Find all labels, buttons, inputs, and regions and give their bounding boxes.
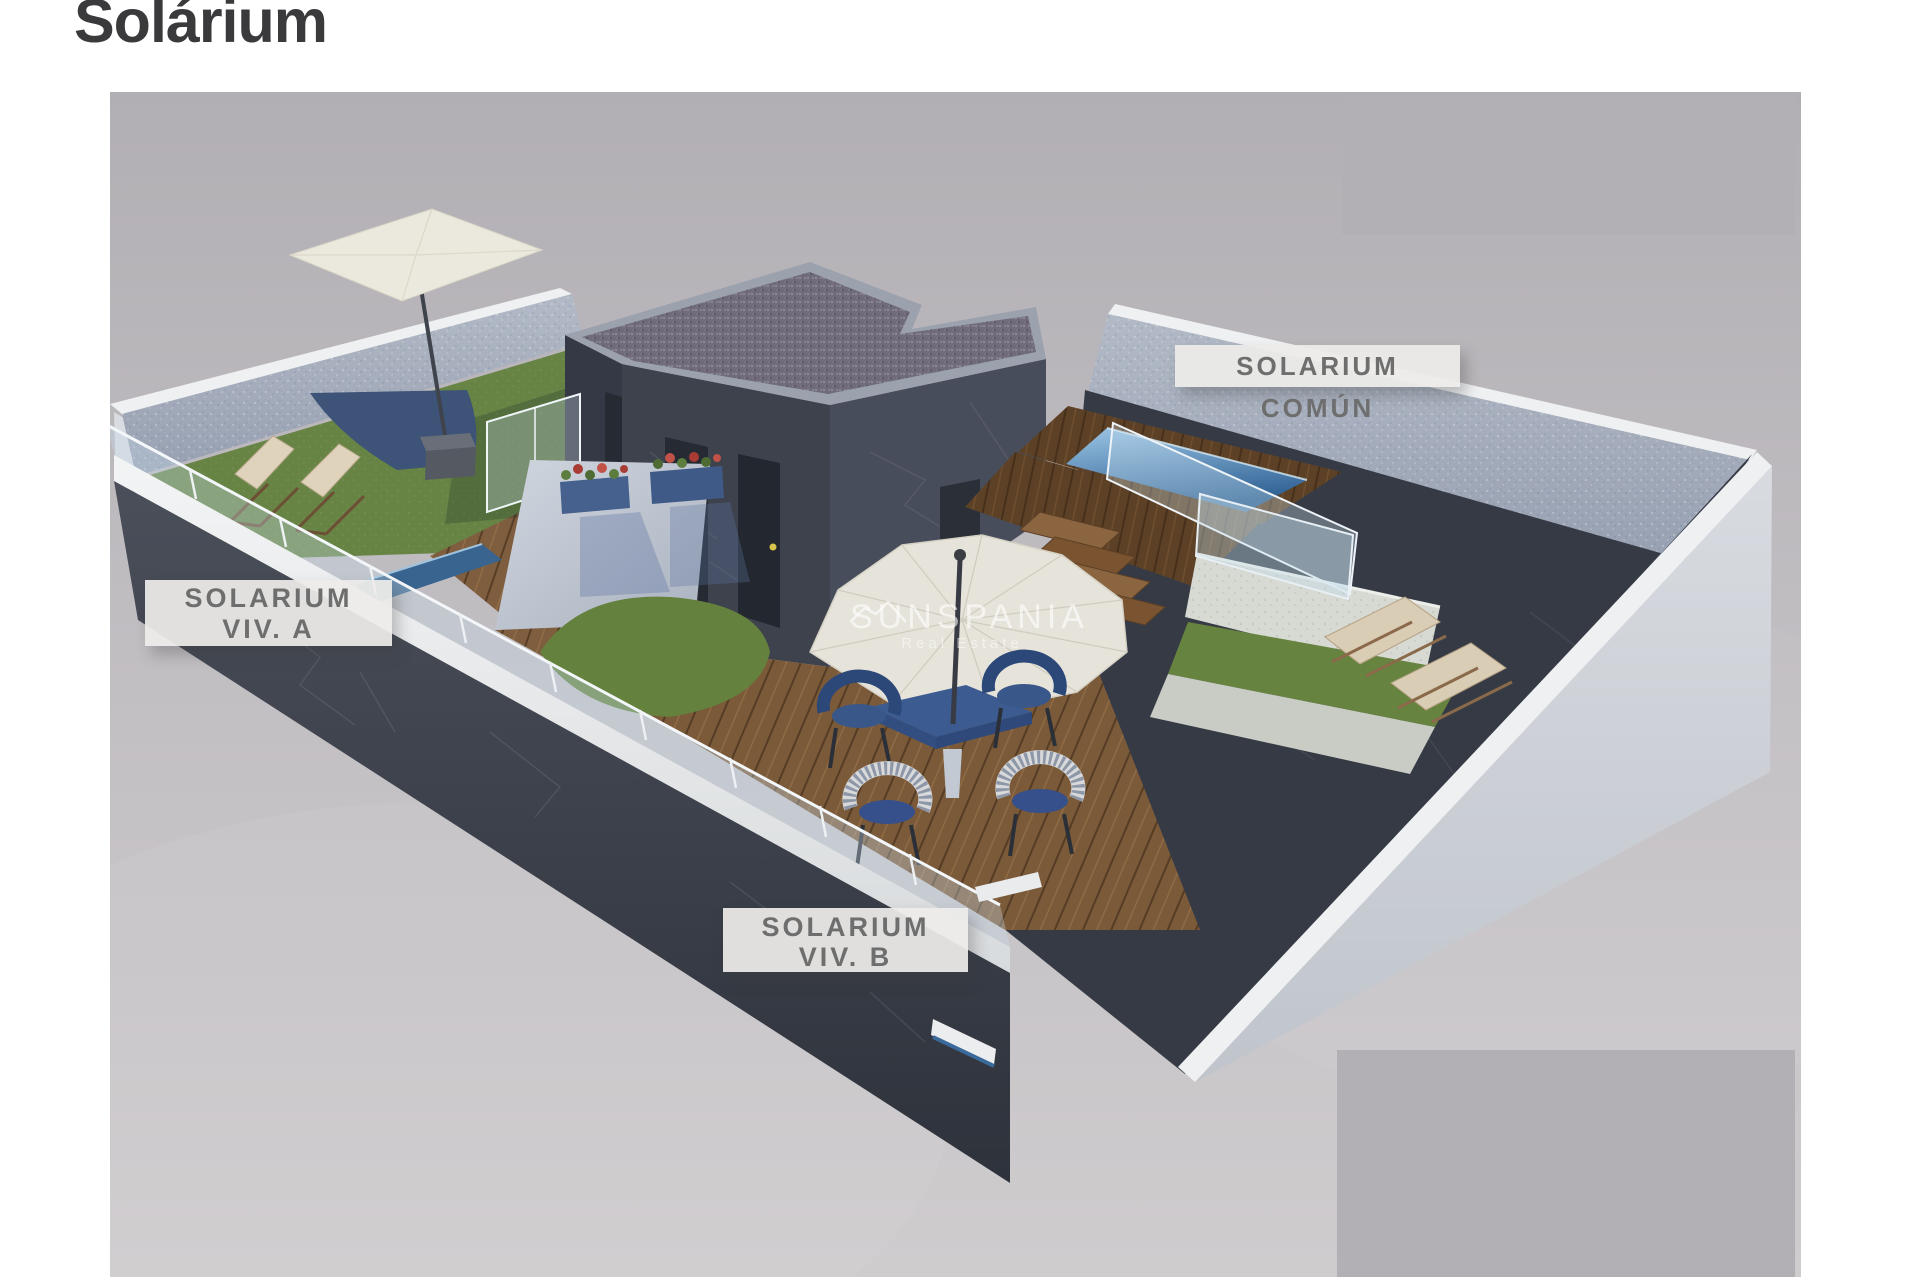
label-solarium-viv-b: SOLARIUM VIV. B [723, 908, 968, 972]
render-viewport: SOLARIUM COMÚN SOLARIUM VIV. A SOLARIUM … [110, 92, 1801, 1277]
door-handle [770, 544, 777, 551]
label-solarium-comun: SOLARIUM COMÚN [1175, 345, 1460, 387]
label-line1: SOLARIUM [145, 583, 392, 614]
building-door [738, 454, 780, 628]
flower-planter [650, 466, 724, 504]
label-line2: VIV. A [145, 614, 392, 645]
solarium-presentation-page: Solárium [0, 0, 1920, 1280]
page-title: Solárium [74, 0, 327, 56]
cover-patch-bottom-right [1337, 1050, 1795, 1277]
label-line1: SOLARIUM [723, 912, 968, 942]
label-line2: VIV. B [723, 942, 968, 972]
flower-planter [560, 476, 630, 514]
label-solarium-viv-a: SOLARIUM VIV. A [145, 580, 392, 646]
cover-patch-top-right [1342, 95, 1795, 235]
umbrella-finial [954, 549, 966, 561]
